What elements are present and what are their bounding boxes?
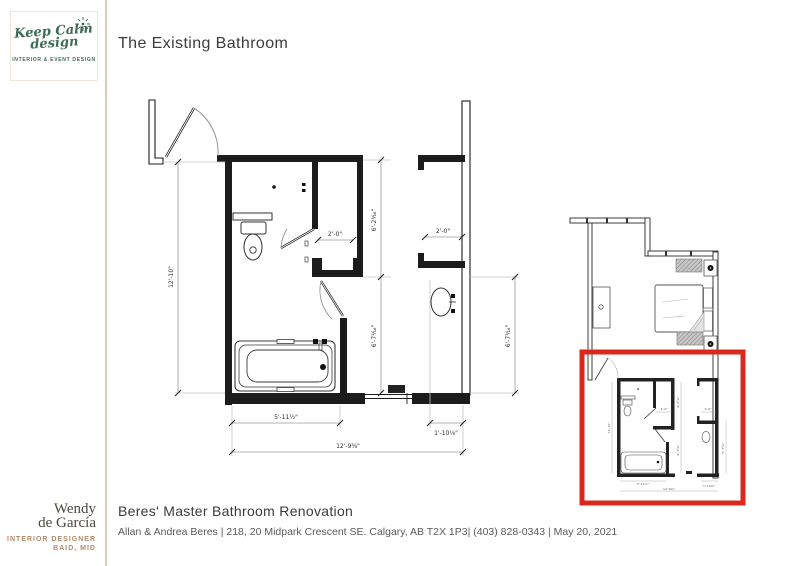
toilet bbox=[233, 213, 272, 260]
keep-calm-design-logo: Keep Calm design INTERIOR & EVENT DESIGN bbox=[10, 11, 98, 81]
designer-credentials: BAID, MID bbox=[0, 544, 96, 553]
wc-door bbox=[281, 229, 314, 262]
entry-door bbox=[166, 108, 218, 157]
dim-upper-mid: 6'-2³⁄₁₆" bbox=[371, 209, 378, 232]
logo-tagline: INTERIOR & EVENT DESIGN bbox=[11, 57, 97, 63]
designer-block: Wendy de García INTERIOR DESIGNER BAID, … bbox=[0, 502, 96, 553]
dim-right-lower: 6'-7³⁄₁₆" bbox=[505, 325, 512, 348]
mini-dim-left: 12'-10" bbox=[607, 422, 611, 434]
bottom-doorway bbox=[365, 393, 412, 404]
mini-dim-closet-right: 2'-0" bbox=[704, 407, 712, 411]
mini-dim-closet-left: 2'-0" bbox=[660, 407, 668, 411]
mini-dim-vanity: 1'-10⅛" bbox=[703, 484, 716, 488]
project-title: Beres' Master Bathroom Renovation bbox=[118, 503, 617, 519]
desk bbox=[593, 287, 610, 328]
mini-dim-right: 6'-7³⁄₁₆" bbox=[721, 442, 725, 454]
fixtures-small bbox=[272, 183, 305, 192]
shower-door bbox=[320, 281, 343, 319]
dim-closet-right: 2'-0" bbox=[436, 228, 450, 235]
bedroom-walls bbox=[570, 218, 718, 478]
mini-dim-lower-mid: 6'-7³⁄₁₆" bbox=[676, 444, 680, 456]
logo-script-text: Keep Calm design bbox=[10, 23, 97, 53]
dim-vanity-width: 1'-10⅛" bbox=[434, 430, 458, 437]
designer-name-line2: de García bbox=[0, 516, 96, 530]
main-floorplan: 12'-10" 6'-2³⁄₁₆" 6'-7³⁄₁₆" 6'-7³⁄₁₆" 2'… bbox=[135, 90, 535, 480]
footer: Beres' Master Bathroom Renovation Allan … bbox=[118, 503, 617, 538]
dim-total-width: 12'-9⅜" bbox=[336, 443, 360, 450]
floor-register bbox=[388, 385, 405, 393]
slide: Keep Calm design INTERIOR & EVENT DESIGN… bbox=[0, 0, 800, 566]
vanity-sink bbox=[431, 288, 456, 316]
mini-dim-tub: 5'-11½" bbox=[637, 482, 650, 486]
page-title: The Existing Bathroom bbox=[118, 35, 288, 53]
mini-dim-total: 12'-9⅜" bbox=[663, 487, 676, 491]
dim-tub-width: 5'-11½" bbox=[274, 414, 298, 421]
designer-title: INTERIOR DESIGNER bbox=[0, 535, 96, 544]
bed bbox=[655, 285, 713, 332]
overview-floorplan: 12'-10" 6'-2³⁄₁₆" 6'-7³⁄₁₆" 6'-7³⁄₁₆" 2'… bbox=[568, 190, 750, 512]
dim-left-height: 12'-10" bbox=[168, 266, 175, 288]
project-details: Allan & Andrea Beres | 218, 20 Midpark C… bbox=[118, 526, 617, 538]
designer-name-line1: Wendy bbox=[0, 502, 96, 516]
dim-closet-left: 2'-0" bbox=[328, 231, 342, 238]
sidebar-divider bbox=[105, 0, 107, 566]
dim-lower-mid: 6'-7³⁄₁₆" bbox=[371, 325, 378, 348]
mini-fixtures bbox=[621, 388, 710, 474]
mini-dim-upper-mid: 6'-2³⁄₁₆" bbox=[676, 396, 680, 408]
bathtub bbox=[235, 339, 335, 392]
